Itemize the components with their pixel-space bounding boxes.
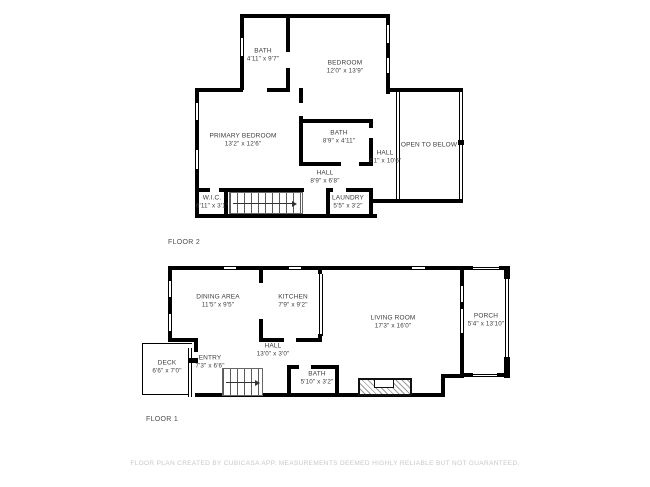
fireplace-firebox [374,379,394,388]
wall-segment [318,266,322,274]
wall-segment [286,14,290,52]
room-label-bath-mid: BATH 8'9" x 4'11" [323,130,355,145]
wall-segment [299,119,373,123]
room-name: BEDROOM [327,60,364,68]
wall-segment [369,199,463,203]
room-name: KITCHEN [278,294,308,302]
room-label-wic: W.I.C. 6'11" x 3'1" [196,195,228,210]
wall-segment [318,334,322,342]
thin-wall [319,274,323,336]
room-dims: 17'3" x 16'0" [371,322,416,330]
window [289,266,301,270]
room-dims: 5'5" x 3'2" [332,202,364,210]
floor2-label: FLOOR 2 [168,239,200,246]
room-name: BATH [323,130,355,138]
room-dims: 12'0" x 13'9" [327,67,364,75]
wall-segment [369,188,373,218]
wall-segment [299,116,303,166]
wall-segment [497,373,510,377]
room-dims: 5'10" x 3'2" [301,378,334,386]
room-label-deck: DECK 6'6" x 7'0" [152,360,181,375]
window [168,314,172,331]
room-label-bath-upper: BATH 4'11" x 9'7" [247,48,279,63]
room-dims: 8'9" x 6'8" [310,177,339,185]
entry-door-sideline [188,348,192,397]
deck-rail [142,343,143,395]
window [386,58,390,73]
window-wall [473,267,499,270]
window [460,309,464,333]
room-label-bedroom: BEDROOM 12'0" x 13'9" [327,60,364,75]
room-dims: 7'3" x 6'6" [195,362,224,370]
room-label-living-room: LIVING ROOM 17'3" x 16'0" [371,315,416,330]
wall-segment [464,266,473,270]
wall-segment [369,119,373,128]
room-dims: 4'11" x 9'7" [247,55,279,63]
room-label-laundry: LAUNDRY 5'5" x 3'2" [332,195,364,210]
wall-segment [460,373,473,377]
floor1-label: FLOOR 1 [146,416,178,423]
room-label-dining-area: DINING AREA 11'5" x 9'5" [196,294,240,309]
window-wall [505,279,509,359]
wall-segment [458,140,464,145]
room-label-open-to-below: OPEN TO BELOW [401,141,457,149]
room-name: ENTRY [195,355,224,363]
room-name: DECK [152,360,181,368]
room-name: PRIMARY BEDROOM [209,133,276,141]
window [386,25,390,43]
room-label-entry: ENTRY 7'3" x 6'6" [195,355,224,370]
disclaimer-text: FLOOR PLAN CREATED BY CUBICASA APP. MEAS… [0,460,650,467]
window [412,266,425,270]
wall-segment [259,338,284,342]
wall-segment [195,88,243,92]
room-label-bath1: BATH 5'10" x 3'2" [301,371,334,386]
wall-segment [287,365,291,397]
deck-rail [142,394,192,395]
room-name: W.I.C. [196,195,228,203]
wall-segment [195,214,377,218]
deck-rail [142,343,192,344]
room-name: LAUNDRY [332,195,364,203]
stairs-direction-arrow [233,203,293,204]
window [195,150,199,169]
room-dims: 5'4" x 13'10" [468,320,505,328]
wall-segment [299,88,303,103]
room-label-hall1: HALL 13'0" x 3'0" [257,343,290,358]
window [460,286,464,302]
window [168,281,172,297]
railing [396,92,400,199]
wall-segment [504,266,510,279]
wall-segment [335,365,339,397]
wall-segment [194,338,198,352]
window [195,103,199,120]
room-name: BATH [247,48,279,56]
room-dims: 8'9" x 4'11" [323,137,355,145]
room-dims: 13'2" x 12'6" [209,140,276,148]
room-name: LIVING ROOM [371,315,416,323]
wall-segment [326,188,333,192]
room-name: BATH [301,371,334,379]
wall-segment [460,333,464,378]
room-dims: 13'0" x 3'0" [257,350,290,358]
window [224,266,236,270]
room-name: HALL [310,170,339,178]
stairs-direction-arrow [226,382,256,383]
room-label-hall2: HALL 8'9" x 6'8" [310,170,339,185]
wall-segment [460,302,464,309]
room-dims: 6'6" x 7'0" [152,367,181,375]
room-dims: 7'9" x 9'2" [278,301,308,309]
wall-segment [286,68,290,90]
room-dims: 6'11" x 3'1" [196,202,228,210]
wall-segment [240,14,390,18]
room-name: HALL [257,343,290,351]
window-wall [459,92,463,199]
wall-segment [299,162,341,166]
room-dims: 4'1" x 10'6" [369,157,402,165]
room-name: PORCH [468,313,505,321]
room-label-hall-upper: HALL 4'1" x 10'6" [369,150,402,165]
room-dims: 11'5" x 9'5" [196,301,240,309]
wall-segment [259,266,263,283]
room-label-porch: PORCH 5'4" x 13'10" [468,313,505,328]
wall-segment [326,188,330,218]
floor-plan-page: BATH 4'11" x 9'7" BEDROOM 12'0" x 13'9" … [0,0,650,487]
room-name: DINING AREA [196,294,240,302]
room-name: HALL [369,150,402,158]
window-wall [473,374,498,377]
window [240,38,244,56]
room-label-primary-bedroom: PRIMARY BEDROOM 13'2" x 12'6" [209,133,276,148]
room-label-kitchen: KITCHEN 7'9" x 9'2" [278,294,308,309]
room-name: OPEN TO BELOW [401,141,457,149]
wall-segment [267,88,290,92]
wall-segment [195,188,210,192]
